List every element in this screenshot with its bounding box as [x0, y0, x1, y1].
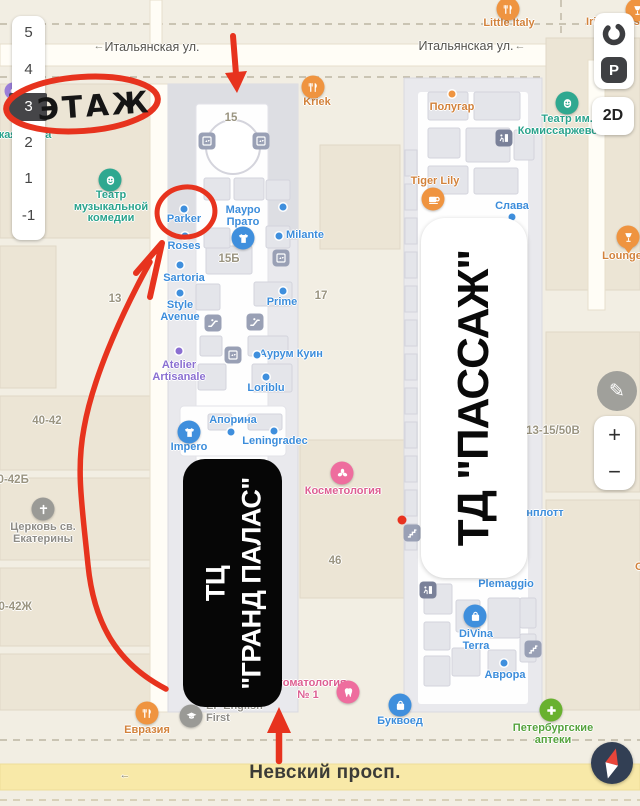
floor-selector[interactable]: 54321-1 [12, 16, 45, 240]
top-right-panel: P [594, 13, 634, 89]
floor-button-2[interactable]: 2 [12, 129, 45, 155]
2d-mode-button[interactable]: 2D [592, 97, 634, 135]
edit-pencil-icon: ✎ [609, 380, 625, 402]
floor-button-3[interactable]: 3 [12, 93, 45, 119]
route-ring-icon[interactable] [601, 21, 627, 47]
zoom-out-button[interactable]: − [594, 453, 635, 490]
compass-button[interactable] [591, 742, 633, 784]
zoom-in-button[interactable]: + [594, 416, 635, 453]
map-canvas[interactable]: Little ItalyIrish HouseKriekПолугарTiger… [0, 0, 640, 806]
floor-button-1[interactable]: 1 [12, 165, 45, 191]
floor-button-5[interactable]: 5 [12, 19, 45, 45]
edit-pencil-button[interactable]: ✎ [597, 371, 637, 411]
parking-button[interactable]: P [601, 57, 627, 83]
floor-button-4[interactable]: 4 [12, 56, 45, 82]
floor-button--1[interactable]: -1 [12, 202, 45, 228]
compass-icon [591, 742, 633, 784]
zoom-control: + − [594, 416, 635, 490]
